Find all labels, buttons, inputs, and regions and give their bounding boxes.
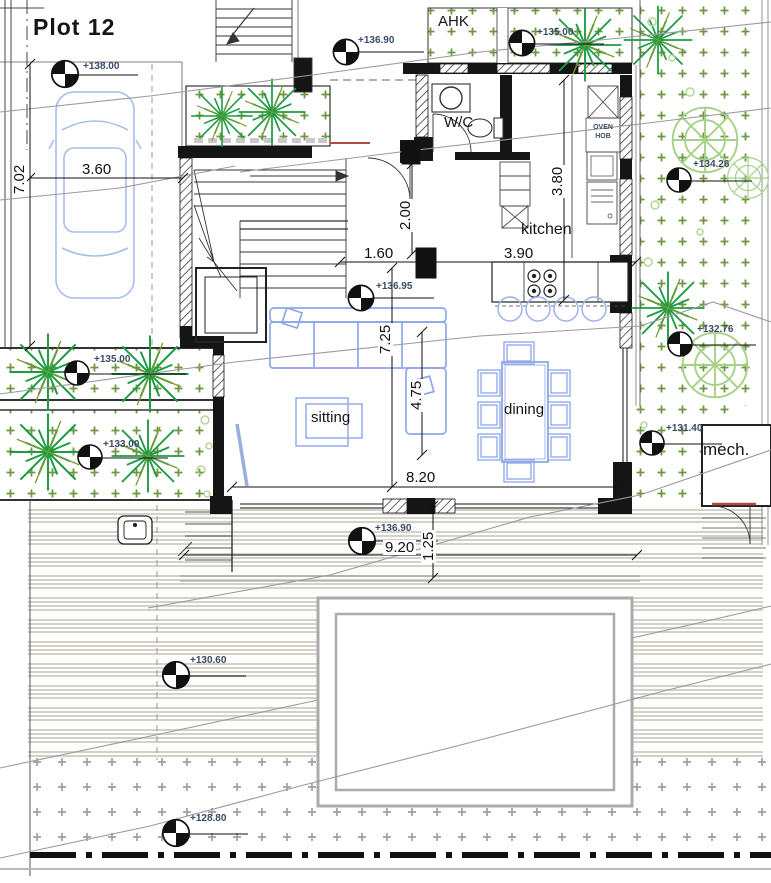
dimension-label: 3.60 xyxy=(80,162,113,177)
room-label-kitchen: kitchen xyxy=(521,222,572,238)
window-north-1 xyxy=(440,64,468,73)
room-label-dining: dining xyxy=(504,402,544,417)
floor-plan: Plot 12 AHK W/C kitchen sitting dining m… xyxy=(0,0,771,883)
elevation-label: +136.95 xyxy=(376,282,412,292)
west-planter-lower xyxy=(0,410,215,500)
dimension-label: 4.75 xyxy=(409,379,424,412)
elevation-label: +135.00 xyxy=(94,355,130,365)
dimension-label: 7.25 xyxy=(378,323,393,356)
dimension-label: 1.25 xyxy=(421,530,436,563)
outdoor-fixture-box xyxy=(118,516,152,544)
pool xyxy=(318,598,632,806)
oven-hob-label: OVEN HOB xyxy=(585,123,621,141)
column xyxy=(416,248,436,278)
room-label-mech: mech. xyxy=(703,441,749,458)
window-east-2 xyxy=(620,179,632,255)
plot-title: Plot 12 xyxy=(33,16,115,39)
window-north-3 xyxy=(578,64,612,73)
hob-label: HOB xyxy=(585,132,621,141)
dimension-label: 3.80 xyxy=(550,165,565,198)
room-label-ahk: AHK xyxy=(438,14,469,29)
dimension-label: 1.60 xyxy=(362,246,395,261)
basin xyxy=(432,84,470,112)
dimension-label: 9.20 xyxy=(383,540,416,555)
elevation-label: +133.00 xyxy=(103,440,139,450)
window-north-2 xyxy=(497,64,550,73)
dimension-label: 2.00 xyxy=(398,199,413,232)
elevation-label: +136.90 xyxy=(358,36,394,46)
kitchen-island xyxy=(492,262,628,302)
window-east-1 xyxy=(620,97,632,159)
elevation-label: +136.90 xyxy=(375,524,411,534)
room-label-wc: W/C xyxy=(444,115,473,130)
elevation-label: +132.76 xyxy=(697,325,733,335)
dimension-label: 3.90 xyxy=(502,246,535,261)
elevation-label: +134.26 xyxy=(693,160,729,170)
column xyxy=(402,142,420,164)
elevation-label: +130.60 xyxy=(190,656,226,666)
elevation-label: +131.40 xyxy=(666,424,702,434)
oven-label: OVEN xyxy=(585,123,621,132)
elevation-label: +138.00 xyxy=(83,62,119,72)
dimension-label: 8.20 xyxy=(404,470,437,485)
dimension-label: 7.02 xyxy=(12,163,27,196)
elevation-label: +135.00 xyxy=(537,28,573,38)
room-label-sitting: sitting xyxy=(311,410,350,425)
elevation-label: +128.80 xyxy=(190,814,226,824)
